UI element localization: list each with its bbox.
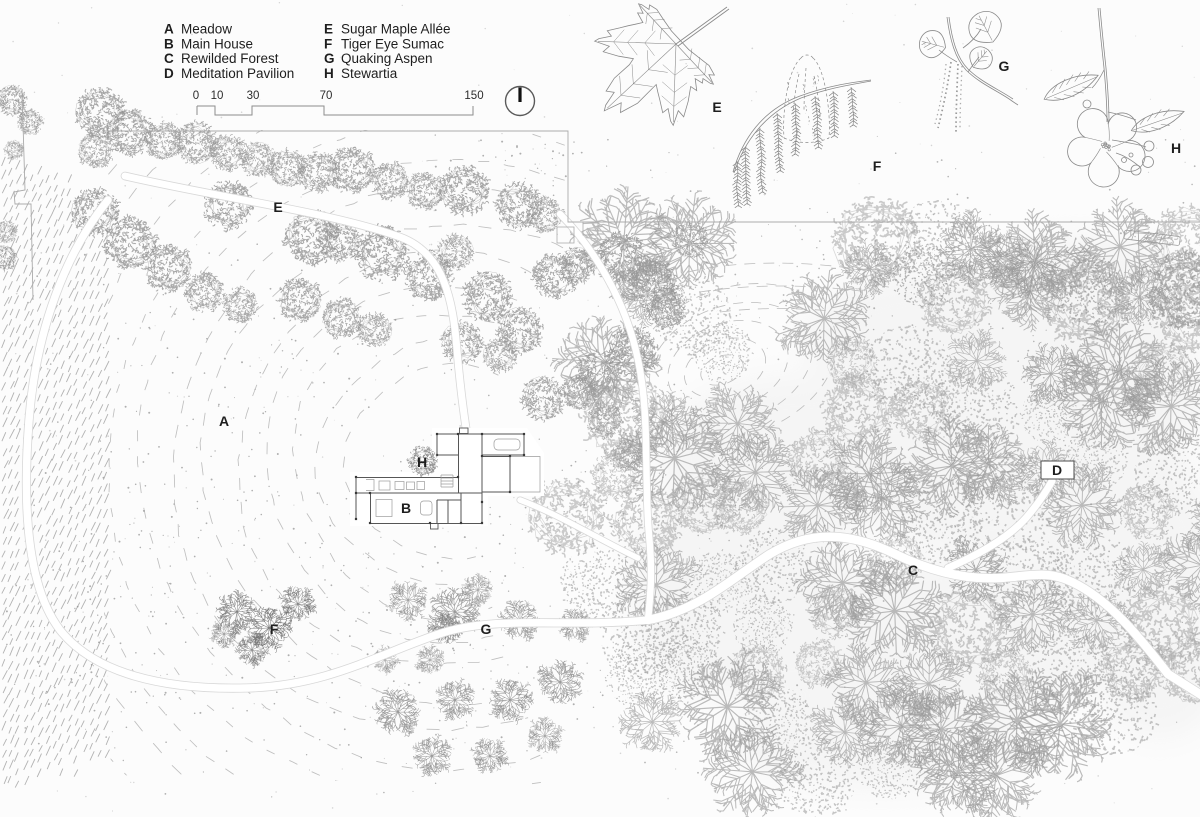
svg-text:F: F xyxy=(873,158,882,174)
svg-text:10: 10 xyxy=(211,90,224,102)
svg-text:150: 150 xyxy=(464,90,483,102)
svg-text:H: H xyxy=(417,454,427,470)
svg-text:C: C xyxy=(164,51,174,66)
svg-text:B: B xyxy=(401,500,411,516)
svg-text:0: 0 xyxy=(193,90,199,102)
svg-text:G: G xyxy=(324,51,335,66)
svg-text:E: E xyxy=(324,22,333,37)
svg-text:70: 70 xyxy=(320,90,333,102)
svg-text:Tiger Eye Sumac: Tiger Eye Sumac xyxy=(341,36,444,51)
svg-text:A: A xyxy=(164,22,174,37)
svg-text:Main House: Main House xyxy=(181,36,253,51)
svg-text:D: D xyxy=(1052,462,1062,478)
svg-text:Rewilded Forest: Rewilded Forest xyxy=(181,51,279,66)
svg-text:Meditation Pavilion: Meditation Pavilion xyxy=(181,66,294,81)
svg-text:G: G xyxy=(999,58,1010,74)
svg-text:B: B xyxy=(164,36,174,51)
svg-text:F: F xyxy=(324,36,332,51)
svg-text:D: D xyxy=(164,66,174,81)
svg-text:A: A xyxy=(219,413,229,429)
svg-text:F: F xyxy=(270,621,279,637)
svg-text:C: C xyxy=(908,562,918,578)
svg-text:E: E xyxy=(273,199,282,215)
svg-text:H: H xyxy=(324,66,334,81)
svg-text:Stewartia: Stewartia xyxy=(341,66,398,81)
svg-text:E: E xyxy=(712,99,721,115)
svg-text:Sugar Maple Allée: Sugar Maple Allée xyxy=(341,22,451,37)
svg-text:H: H xyxy=(1171,140,1181,156)
svg-text:Quaking Aspen: Quaking Aspen xyxy=(341,51,433,66)
svg-text:30: 30 xyxy=(247,90,260,102)
svg-text:Meadow: Meadow xyxy=(181,22,232,37)
svg-text:G: G xyxy=(481,621,492,637)
